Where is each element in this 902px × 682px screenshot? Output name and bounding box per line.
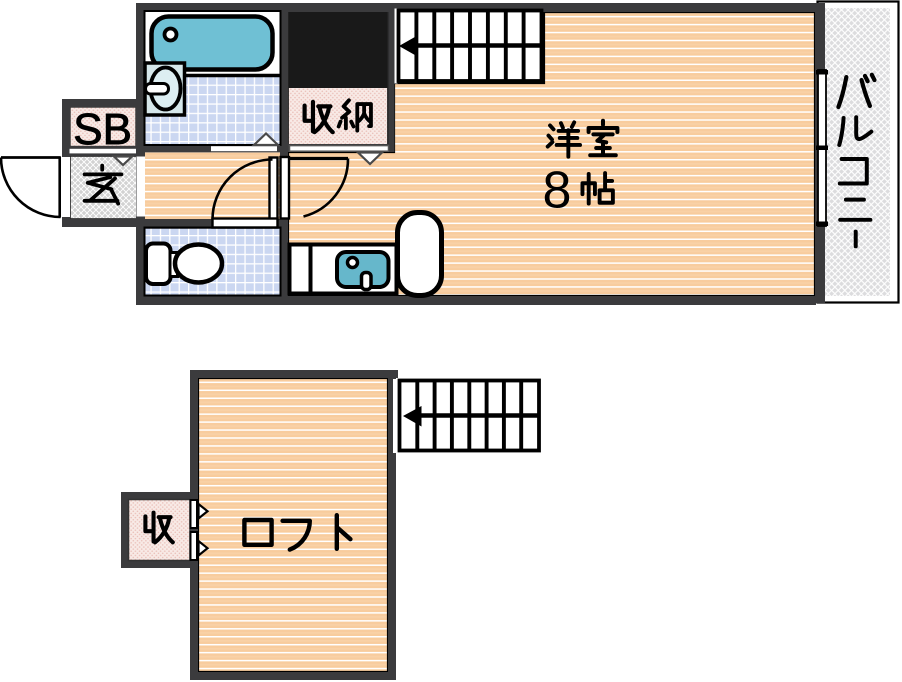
svg-text:8: 8 [543, 162, 572, 220]
svg-text:SB: SB [73, 105, 132, 154]
